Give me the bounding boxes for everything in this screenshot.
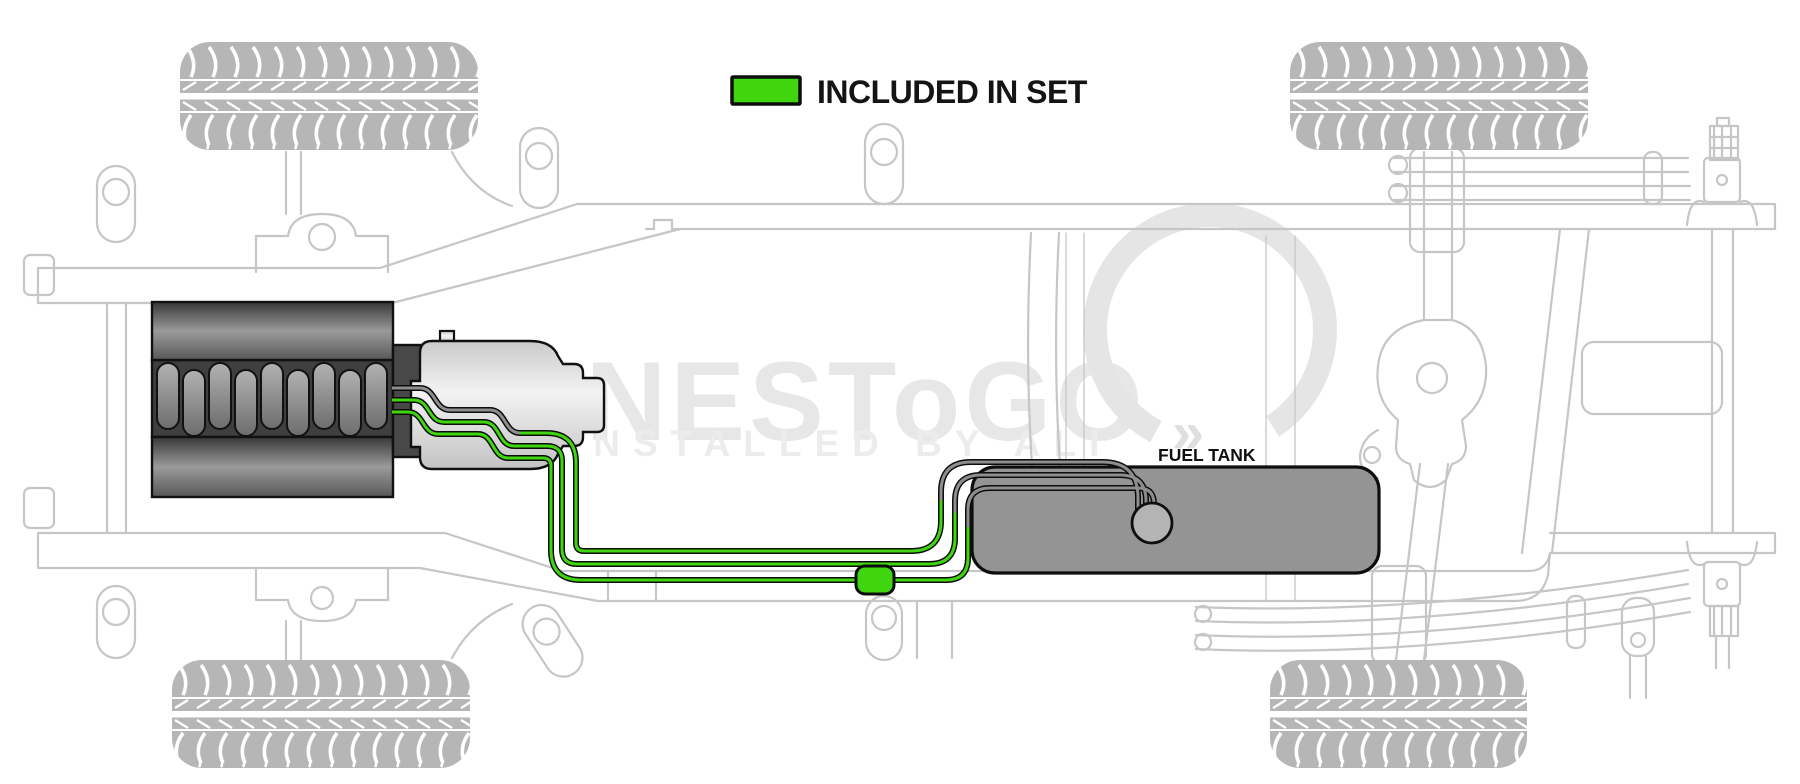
front-arm-top [452, 152, 512, 206]
legend: INCLUDED IN SET [732, 74, 1088, 110]
shock-mount-top-right [1687, 118, 1757, 225]
leaf-spring-top [1389, 148, 1690, 252]
fuel-tank [972, 467, 1379, 573]
motor-mount-plate-top [256, 214, 388, 272]
body-mount-6 [866, 596, 902, 660]
front-arm-bottom [452, 604, 512, 658]
motor-mount-hole-bottom [311, 587, 333, 609]
tire-link-bottom-left [286, 621, 301, 660]
body-mount-2 [520, 128, 558, 208]
spare-carrier-rails [1522, 229, 1733, 553]
shock-mount-bottom-right [1687, 542, 1757, 668]
legend-label: INCLUDED IN SET [817, 74, 1088, 110]
front-tab-lower [24, 488, 54, 528]
engine [152, 302, 423, 497]
body-mount-1 [97, 166, 135, 242]
tire-link-top-left [286, 152, 301, 214]
rear-axle-top [1424, 152, 1452, 320]
tire-front-left-bottom [172, 660, 470, 768]
motor-mount-hole-top [309, 224, 335, 250]
motor-mount-plate-bottom [256, 568, 388, 621]
fuel-line-diagram: LINESToGO INSTALLED BY ALI » [0, 0, 1800, 784]
engine-block-bottom [152, 437, 393, 497]
shock-bottom-mid [1622, 598, 1654, 698]
differential [1360, 320, 1486, 487]
rail-notch [646, 220, 680, 229]
body-mount-5 [515, 598, 589, 684]
leaf-spring-bottom [1195, 566, 1690, 664]
spare-winch [1582, 342, 1722, 414]
fuel-tank-label: FUEL TANK [1158, 445, 1256, 465]
front-crossmember [107, 303, 126, 533]
tire-front-left [180, 42, 478, 150]
legend-swatch [732, 77, 800, 104]
tire-rear-right-bottom [1270, 660, 1527, 768]
body-mount-3 [865, 124, 903, 204]
engine-block-top [152, 302, 393, 360]
fuel-filter [856, 566, 894, 594]
tire-rear-right-top [1290, 42, 1588, 150]
watermark: LINESToGO INSTALLED BY ALI » [478, 174, 1366, 485]
body-mount-4 [97, 586, 135, 658]
fuel-pump-sender [1132, 503, 1172, 543]
